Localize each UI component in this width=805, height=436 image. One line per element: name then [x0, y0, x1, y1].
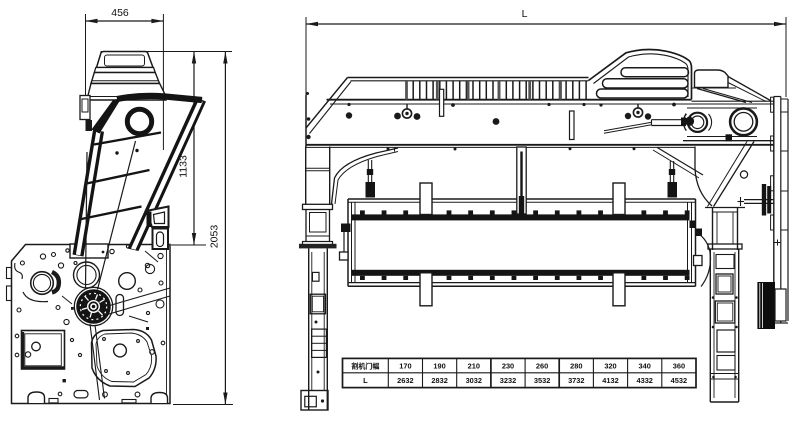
svg-text:4532: 4532	[671, 376, 687, 385]
svg-text:456: 456	[111, 7, 129, 19]
svg-text:2053: 2053	[209, 225, 221, 249]
svg-text:3232: 3232	[500, 376, 516, 385]
svg-text:3732: 3732	[568, 376, 584, 385]
svg-text:2632: 2632	[397, 376, 413, 385]
svg-text:320: 320	[604, 362, 616, 371]
svg-text:360: 360	[673, 362, 685, 371]
svg-text:4332: 4332	[636, 376, 652, 385]
svg-text:L: L	[522, 8, 528, 20]
svg-text:170: 170	[399, 362, 411, 371]
svg-text:L: L	[363, 376, 368, 385]
svg-text:2832: 2832	[431, 376, 447, 385]
svg-text:340: 340	[639, 362, 651, 371]
svg-text:190: 190	[433, 362, 445, 371]
svg-text:280: 280	[570, 362, 582, 371]
svg-text:260: 260	[536, 362, 548, 371]
svg-text:割机门幅: 割机门幅	[351, 362, 379, 371]
svg-text:4132: 4132	[602, 376, 618, 385]
svg-text:3032: 3032	[466, 376, 482, 385]
svg-text:230: 230	[502, 362, 514, 371]
svg-text:210: 210	[468, 362, 480, 371]
svg-text:3532: 3532	[534, 376, 550, 385]
